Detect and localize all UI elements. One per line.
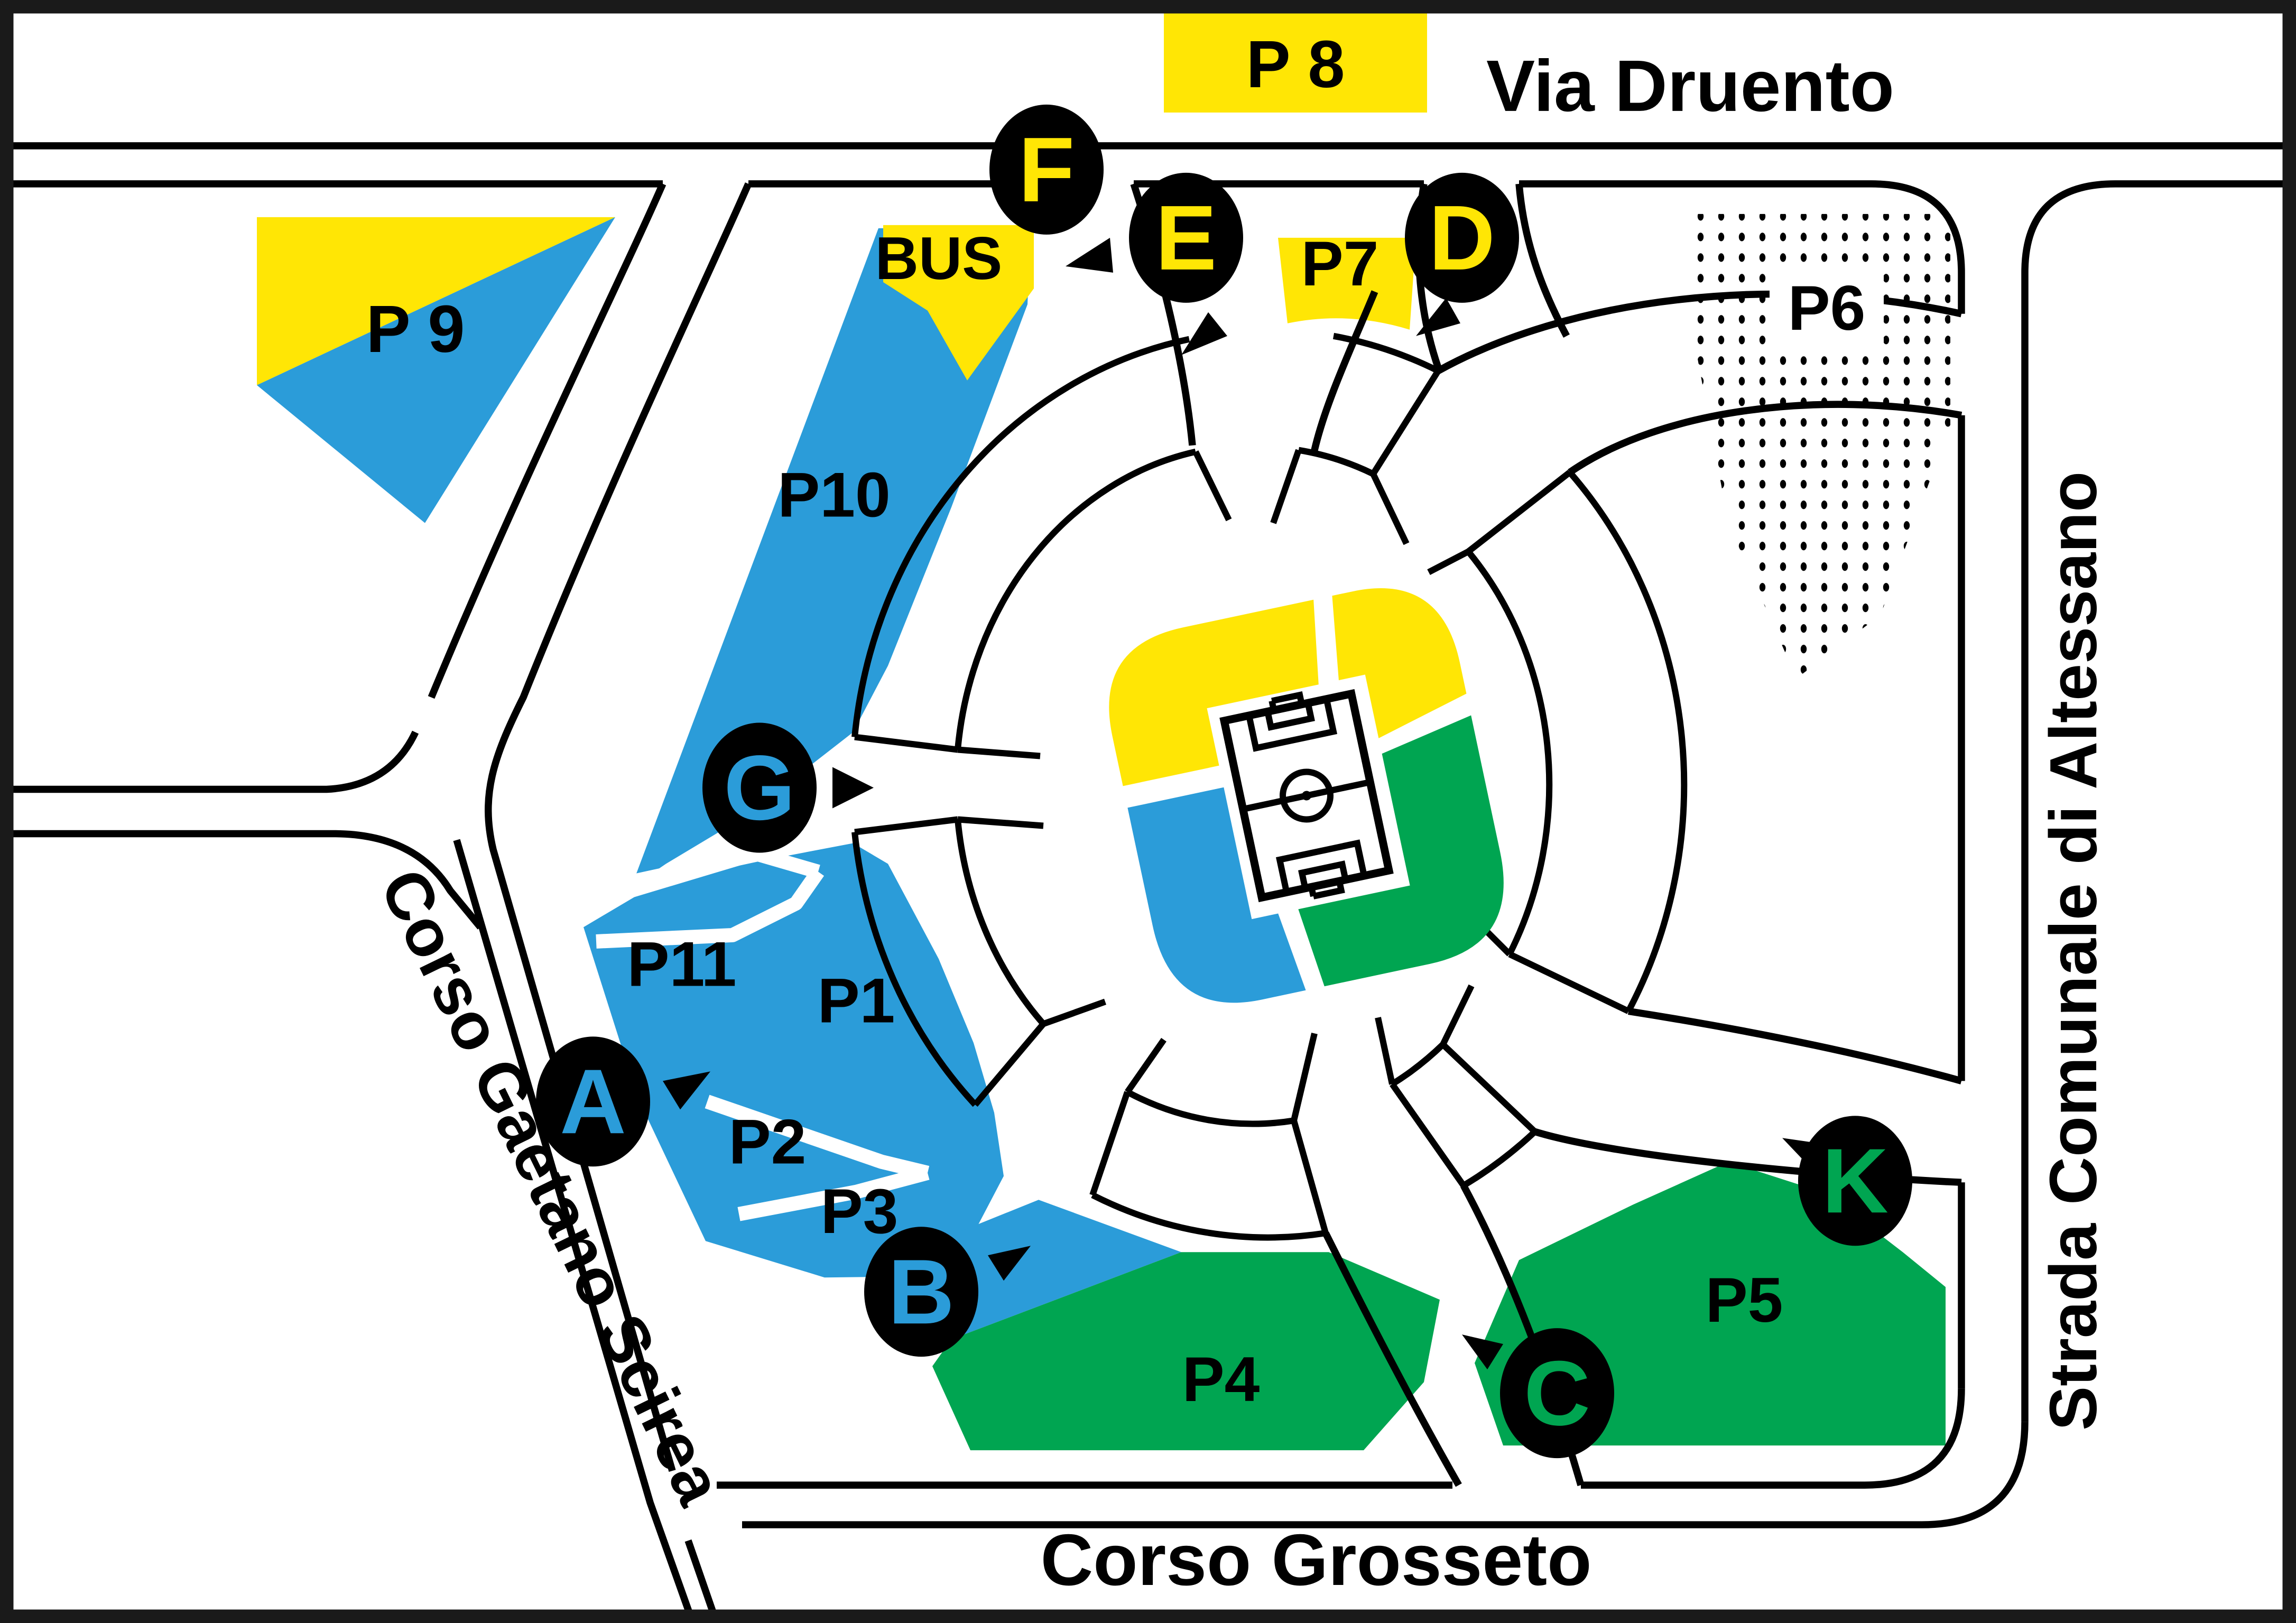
street-label-via-druento: Via Druento (1486, 45, 1894, 127)
gate-d: D (1405, 173, 1519, 303)
stadium-parking-map: F E D G A B C K P 8 (0, 0, 2296, 1623)
parking-label-p8: P 8 (1246, 27, 1345, 101)
parking-label-p1: P1 (818, 965, 895, 1036)
gate-g: G (702, 723, 817, 853)
street-label-corso-grosseto: Corso Grosseto (1041, 1519, 1592, 1601)
gate-e-letter: E (1155, 187, 1217, 289)
parking-label-p9: P 9 (366, 292, 465, 366)
gate-e: E (1129, 173, 1243, 303)
street-label-strada-comunale: Strada Comunale di Altessano (2036, 471, 2110, 1431)
gate-g-letter: G (724, 737, 795, 839)
gate-k-letter: K (1822, 1129, 1888, 1232)
parking-label-p7: P7 (1301, 228, 1379, 299)
gate-d-letter: D (1429, 187, 1495, 289)
parking-label-p2: P2 (729, 1106, 807, 1177)
parking-label-bus: BUS (875, 225, 1003, 292)
gate-b-letter: B (888, 1240, 955, 1343)
parking-label-p5: P5 (1706, 1265, 1783, 1336)
parking-label-p11: P11 (627, 929, 737, 999)
parking-label-p3: P3 (821, 1176, 899, 1247)
gate-k: K (1798, 1116, 1912, 1246)
gate-f-letter: F (1019, 118, 1075, 221)
parking-label-p6: P6 (1788, 273, 1866, 344)
parking-label-p4: P4 (1182, 1344, 1260, 1415)
gate-c-letter: C (1524, 1342, 1590, 1444)
gate-a-letter: A (560, 1050, 626, 1153)
gate-f: F (989, 105, 1104, 235)
parking-label-p10: P10 (777, 460, 891, 531)
gate-c: C (1500, 1328, 1614, 1458)
